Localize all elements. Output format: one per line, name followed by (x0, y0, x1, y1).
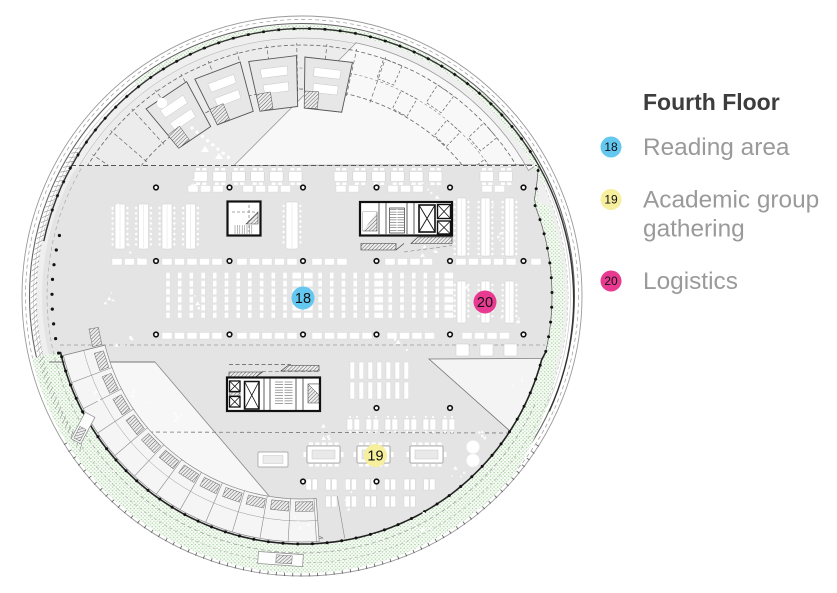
svg-text:20: 20 (477, 295, 493, 311)
svg-text:20: 20 (604, 274, 618, 288)
svg-text:Reading area: Reading area (643, 134, 790, 161)
svg-text:18: 18 (295, 291, 311, 307)
svg-text:18: 18 (604, 140, 618, 154)
svg-text:19: 19 (367, 449, 383, 465)
svg-text:Fourth Floor: Fourth Floor (643, 89, 780, 115)
svg-text:gathering: gathering (643, 216, 745, 243)
svg-text:Logistics: Logistics (643, 268, 738, 295)
svg-text:19: 19 (604, 193, 618, 207)
svg-text:Academic group: Academic group (643, 187, 819, 214)
